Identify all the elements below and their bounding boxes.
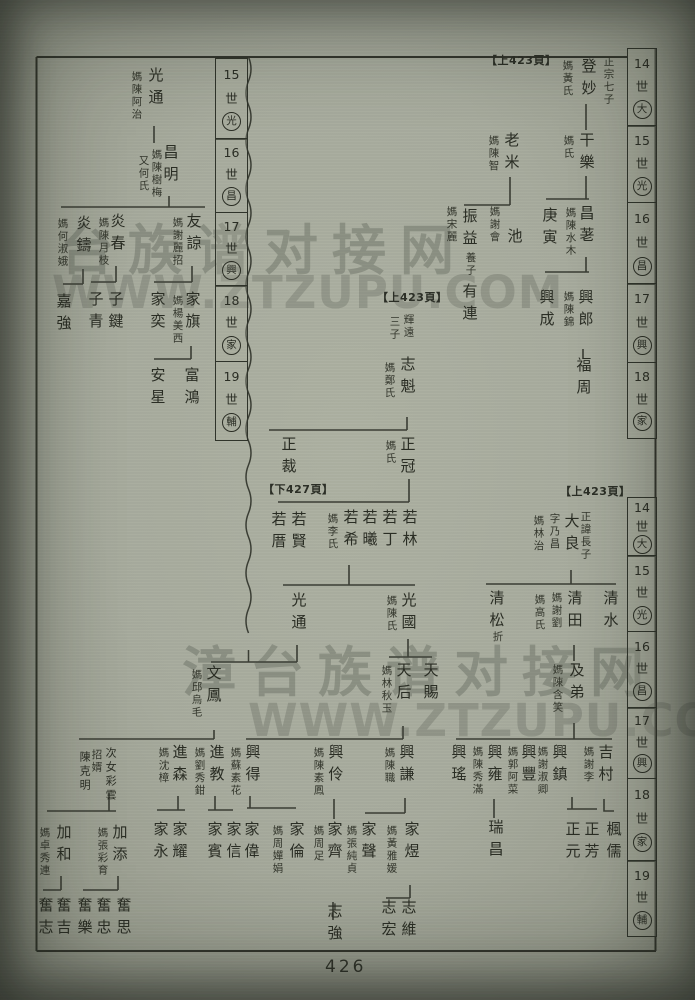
generation-cell-17: 17世興 [627,283,657,363]
annotation-column: 招婿 [90,749,102,774]
generation-shi-label: 世 [636,516,649,535]
person-name-column: 文鳳 [205,665,222,709]
spouse-name-column: 媽高氏 [533,594,545,632]
spouse-name-column: 媽陳秀滿 [471,746,483,796]
spouse-name-column: 媽何淑娥 [56,218,68,268]
person-name-column: 若希 [342,509,359,553]
person-name-column: 興雍 [486,744,503,788]
person-name-column: 老米 [503,132,520,176]
annotation-column: 輝遠 [402,314,414,339]
spouse-name-column: 媽陳阿治 [130,71,142,121]
generation-shi-label: 世 [636,312,649,331]
spouse-name-column: 媽陳含笑 [551,664,563,714]
page-reference-label: 【上423頁】 [560,483,630,499]
page-reference-label: 【上423頁】 [486,52,556,68]
person-name-column: 正裁 [280,436,297,480]
generation-cell-16: 16世昌 [627,202,657,285]
generation-number: 18 [634,787,650,802]
spouse-name-column: 媽陳水木 [564,207,576,257]
person-name-column: 子鍵 [107,291,124,335]
generation-number: 15 [634,133,650,148]
generation-cell-19: 19世輔 [627,860,657,937]
generation-poem-character: 光 [222,112,241,131]
page-number: 426 [325,957,366,977]
person-name-column: 若曦 [361,509,378,553]
generation-number: 14 [634,500,650,515]
annotation-column: 折 [491,631,503,644]
annotation-column: 正宗七子 [602,56,614,106]
person-name-column: 池 [506,228,523,250]
spouse-name-column: 媽謝麗招 [171,217,183,267]
generation-number: 16 [634,211,650,226]
person-name-column: 及弟 [568,662,585,706]
person-name-column: 興謙 [398,744,415,788]
person-name-column: 友諒 [185,213,202,257]
generation-number: 14 [634,56,650,71]
generation-shi-label: 世 [225,238,238,257]
connector-segments [43,104,616,920]
generation-poem-character: 興 [633,336,652,355]
generation-shi-label: 世 [636,658,649,677]
person-name-column: 昌荖 [578,205,595,249]
person-name-column: 有連 [461,283,478,327]
spouse-name-column: 媽謝會 [488,206,500,244]
generation-poem-character: 昌 [633,682,652,701]
generation-poem-character: 光 [633,177,652,196]
spouse-name-column: 媽宋麗 [445,206,457,244]
person-name-column: 家偉 [243,821,260,865]
spouse-name-column: 媽林秋玉 [380,665,392,715]
annotation-column: 次女彩雲 [104,747,116,803]
spouse-name-column: 媽陳氏 [385,595,397,633]
person-name-column: 清松 [488,590,505,634]
generation-shi-label: 世 [636,887,649,906]
person-name-column: 光國 [400,592,417,636]
person-name-column: 福周 [575,357,592,401]
generation-poem-character: 輔 [633,911,652,930]
generation-number: 15 [634,563,650,578]
generation-cell-17: 17世興 [627,707,657,779]
spouse-name-column: 媽周足 [312,825,324,863]
generation-number: 17 [634,291,650,306]
spouse-name-column: 媽黃氏 [561,60,573,98]
person-name-column: 家耀 [171,821,188,865]
person-name-column: 奮吉 [55,897,72,941]
person-name-column: 家永 [152,821,169,865]
spouse-name-column: 媽謝劉 [550,592,562,630]
person-name-column: 光通 [147,67,164,111]
spouse-name-column: 媽劉秀鉗 [193,747,205,797]
generation-poem-character: 昌 [633,257,652,276]
annotation-column: 字乃昌 [548,513,560,551]
person-name-column: 天賜 [422,662,439,706]
person-name-column: 志強 [326,903,343,947]
spouse-name-column: 媽卓秀連 [38,827,50,877]
generation-poem-character: 輔 [222,413,241,432]
generation-cell-15: 15世光 [215,58,248,140]
generation-shi-label: 世 [636,582,649,601]
generation-number: 19 [224,369,240,384]
person-name-column: 吉村 [597,744,614,788]
person-name-column: 家賓 [206,821,223,865]
person-name-column: 大良 [563,513,580,557]
person-name-column: 家煜 [403,821,420,865]
spouse-name-column: 又何氏 [137,155,149,193]
generation-number: 18 [224,293,240,308]
person-name-column: 瑞昌 [487,819,504,863]
generation-cell-18: 18世家 [627,778,657,862]
generation-number: 17 [634,713,650,728]
person-name-column: 正冠 [399,436,416,480]
spouse-name-column: 媽陳月枝 [97,217,109,267]
spouse-name-column: 媽陳智 [487,135,499,173]
spouse-name-column: 媽邱烏毛 [190,669,202,719]
page-reference-label: 【下427頁】 [263,481,333,497]
generation-poem-character: 家 [222,336,241,355]
person-name-column: 正芳 [583,821,600,865]
generation-cell-15: 15世光 [627,125,657,203]
person-name-column: 興豐 [520,744,537,788]
person-name-column: 正元 [564,821,581,865]
person-name-column: 興瑤 [450,744,467,788]
spouse-name-column: 媽張彩育 [96,827,108,877]
spouse-name-column: 媽謝淑卿 [536,746,548,796]
person-name-column: 家奕 [149,291,166,335]
spouse-name-column: 媽氏 [562,135,574,160]
generation-number: 19 [634,868,650,883]
generation-number: 18 [634,369,650,384]
person-name-column: 若厝 [270,511,287,555]
person-name-column: 家信 [225,821,242,865]
spouse-name-column: 媽楊美西 [171,295,183,345]
annotation-column: 三子 [388,316,400,341]
generation-cell-16: 16世昌 [627,631,657,709]
person-name-column: 家聲 [360,821,377,865]
spouse-name-column: 媽黃雅媛 [385,825,397,875]
annotation-column: 養子 [464,252,476,277]
generation-shi-label: 世 [636,153,649,172]
generation-shi-label: 世 [225,88,238,107]
person-name-column: 子青 [87,291,104,335]
generation-poem-character: 家 [633,412,652,431]
spouse-name-column: 媽陳素鳳 [312,747,324,797]
person-name-column: 天后 [395,662,412,706]
generation-number: 16 [224,145,240,160]
person-name-column: 加添 [111,824,128,868]
person-name-column: 興伶 [327,744,344,788]
person-name-column: 陳克明 [78,751,90,793]
person-name-column: 清水 [602,590,619,634]
page-reference-label: 【上423頁】 [377,289,447,305]
genealogy-book-page: 台族谱对接网WWW.ZTZUPU.COM漳台族谱对接网WWW.ZTZUPU.CO… [0,0,695,1000]
generation-shi-label: 世 [225,164,238,183]
spouse-name-column: 媽林治 [532,515,544,553]
generation-cell-14: 14世大 [627,497,657,557]
person-name-column: 干樂 [578,132,595,176]
generation-number: 17 [224,219,240,234]
generation-cell-19: 19世輔 [215,361,248,441]
person-name-column: 興郎 [577,289,594,333]
person-name-column: 楓儒 [605,821,622,865]
spouse-name-column: 媽蘇素花 [229,747,241,797]
generation-shi-label: 世 [636,232,649,251]
person-name-column: 炎春 [109,213,126,257]
generation-poem-character: 家 [633,833,652,852]
generation-number: 16 [634,639,650,654]
generation-cell-14: 14世大 [627,48,657,127]
generation-cell-18: 18世家 [627,362,657,439]
generation-poem-character: 興 [222,261,241,280]
generation-poem-character: 興 [633,754,652,773]
generation-cell-17: 17世興 [215,212,248,287]
generation-number: 15 [224,67,240,82]
generation-poem-character: 大 [633,100,652,119]
person-name-column: 奮志 [37,897,54,941]
person-name-column: 振益 [461,208,478,252]
generation-cell-15: 15世光 [627,555,657,632]
person-name-column: 志魁 [399,356,416,400]
spouse-name-column: 媽氏 [384,440,396,465]
generation-poem-character: 大 [633,535,652,554]
spouse-name-column: 媽鄭氏 [383,362,395,400]
generation-shi-label: 世 [636,389,649,408]
person-name-column: 若林 [401,509,418,553]
person-name-column: 進森 [171,744,188,788]
person-name-column: 家齊 [326,821,343,865]
person-name-column: 嘉強 [55,293,72,337]
person-name-column: 若丁 [381,509,398,553]
spouse-name-column: 媽沈樟 [157,747,169,785]
person-name-column: 家倫 [288,821,305,865]
person-name-column: 興成 [538,289,555,333]
generation-cell-18: 18世家 [215,285,248,362]
person-name-column: 若賢 [290,511,307,555]
generation-poem-character: 昌 [222,187,241,206]
spouse-name-column: 媽張純貞 [345,825,357,875]
person-name-column: 奮思 [115,897,132,941]
person-name-column: 加和 [55,824,72,868]
person-name-column: 昌明 [162,144,179,188]
generation-shi-label: 世 [636,808,649,827]
generation-poem-character: 光 [633,606,652,625]
generation-cell-16: 16世昌 [215,138,248,213]
person-name-column: 登妙 [580,58,597,102]
person-name-column: 志宏 [380,899,397,943]
person-name-column: 炎鑄 [75,215,92,259]
person-name-column: 奮忠 [95,897,112,941]
person-name-column: 光通 [290,592,307,636]
page-border [37,48,657,951]
person-name-column: 奮樂 [76,897,93,941]
spouse-name-column: 媽李氏 [326,513,338,551]
person-name-column: 家旗 [184,291,201,335]
person-name-column: 志維 [400,899,417,943]
annotation-column: 正諱長子 [579,511,591,561]
generation-shi-label: 世 [225,389,238,408]
person-name-column: 安星 [149,367,166,411]
person-name-column: 興得 [244,744,261,788]
spouse-name-column: 媽陳樹梅 [150,149,162,199]
generation-shi-label: 世 [225,312,238,331]
person-name-column: 清田 [566,590,583,634]
spouse-name-column: 媽郭阿菜 [506,746,518,796]
person-name-column: 庚寅 [541,207,558,251]
spouse-name-column: 媽陳職 [383,747,395,785]
spouse-name-column: 媽謝李 [582,746,594,784]
spouse-name-column: 媽周嬋娟 [271,825,283,875]
person-name-column: 興鎮 [551,744,568,788]
generation-shi-label: 世 [636,732,649,751]
generation-shi-label: 世 [636,76,649,95]
person-name-column: 進教 [208,744,225,788]
person-name-column: 富鴻 [183,367,200,411]
spouse-name-column: 媽陳錦 [562,291,574,329]
